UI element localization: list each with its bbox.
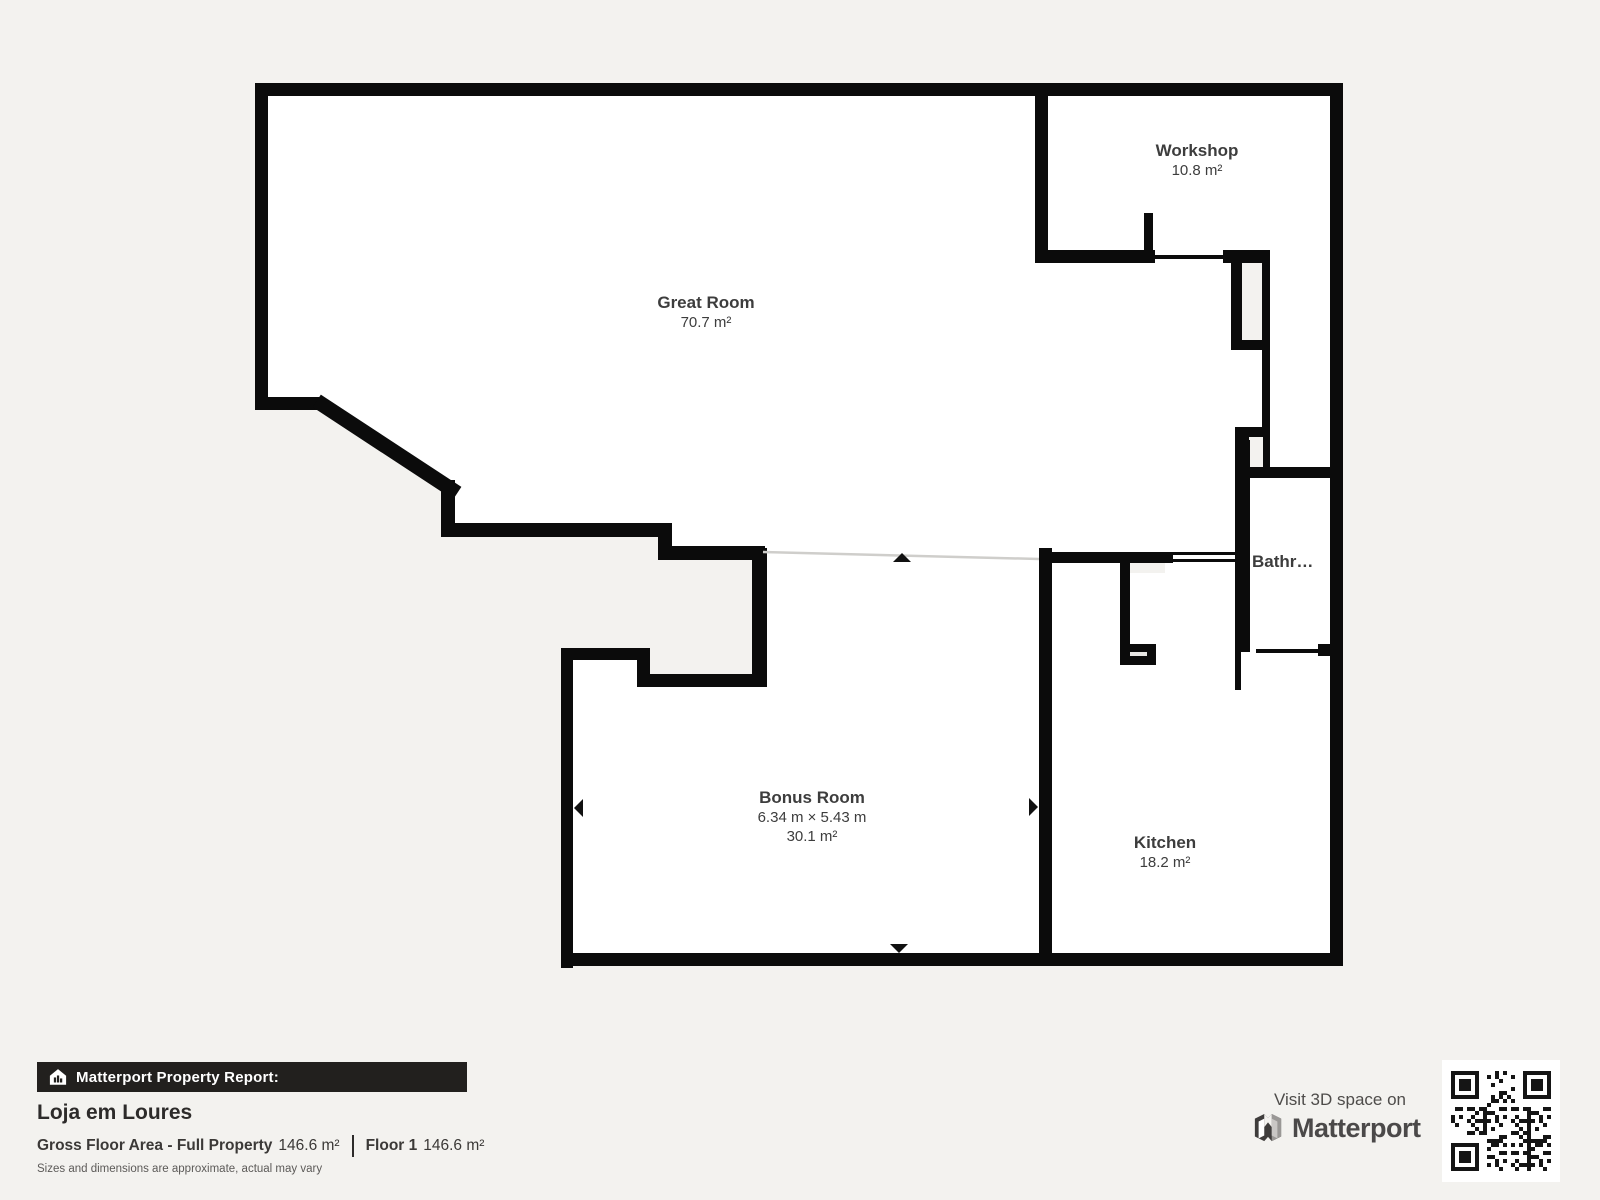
floor-plan [0, 0, 1600, 1010]
room-label-kitchen: Kitchen 18.2 m² [1065, 832, 1265, 872]
room-label-bathroom: Bathroom [1252, 551, 1322, 572]
room-area: 30.1 m² [662, 827, 962, 846]
room-label-bonus-room: Bonus Room 6.34 m × 5.43 m 30.1 m² [662, 787, 962, 846]
room-dimensions: 6.34 m × 5.43 m [662, 808, 962, 827]
matterport-floorplan-report: Great Room 70.7 m² Workshop 10.8 m² Bath… [0, 0, 1600, 1200]
matterport-brand: Matterport [1253, 1112, 1421, 1144]
matterport-logo-icon [1253, 1112, 1283, 1144]
gross-floor-area-value: 146.6 m² [278, 1137, 339, 1155]
room-area: 10.8 m² [1097, 161, 1297, 180]
floor-label: Floor 1 [366, 1137, 418, 1155]
room-area: 18.2 m² [1065, 853, 1265, 872]
room-name: Bonus Room [662, 787, 962, 808]
divider [352, 1135, 354, 1157]
qr-pattern [1451, 1071, 1551, 1171]
room-name: Kitchen [1065, 832, 1265, 853]
visit-3d-space-text: Visit 3D space on [1250, 1090, 1430, 1110]
property-name: Loja em Loures [37, 1101, 192, 1125]
gross-floor-area-label: Gross Floor Area - Full Property [37, 1137, 272, 1155]
report-header-bar: Matterport Property Report: [37, 1062, 467, 1092]
room-name: Workshop [1097, 140, 1297, 161]
area-stats-row: Gross Floor Area - Full Property 146.6 m… [37, 1135, 484, 1157]
floor-value: 146.6 m² [423, 1137, 484, 1155]
matterport-wordmark: Matterport [1292, 1113, 1421, 1144]
room-name: Great Room [556, 292, 856, 313]
room-label-great-room: Great Room 70.7 m² [556, 292, 856, 332]
house-chart-icon [49, 1068, 67, 1086]
kitchen-stub-detail [1130, 652, 1147, 656]
report-header-text: Matterport Property Report: [76, 1069, 279, 1086]
disclaimer-text: Sizes and dimensions are approximate, ac… [37, 1163, 322, 1175]
room-label-workshop: Workshop 10.8 m² [1097, 140, 1297, 180]
qr-code [1442, 1060, 1560, 1182]
room-area: 70.7 m² [556, 313, 856, 332]
